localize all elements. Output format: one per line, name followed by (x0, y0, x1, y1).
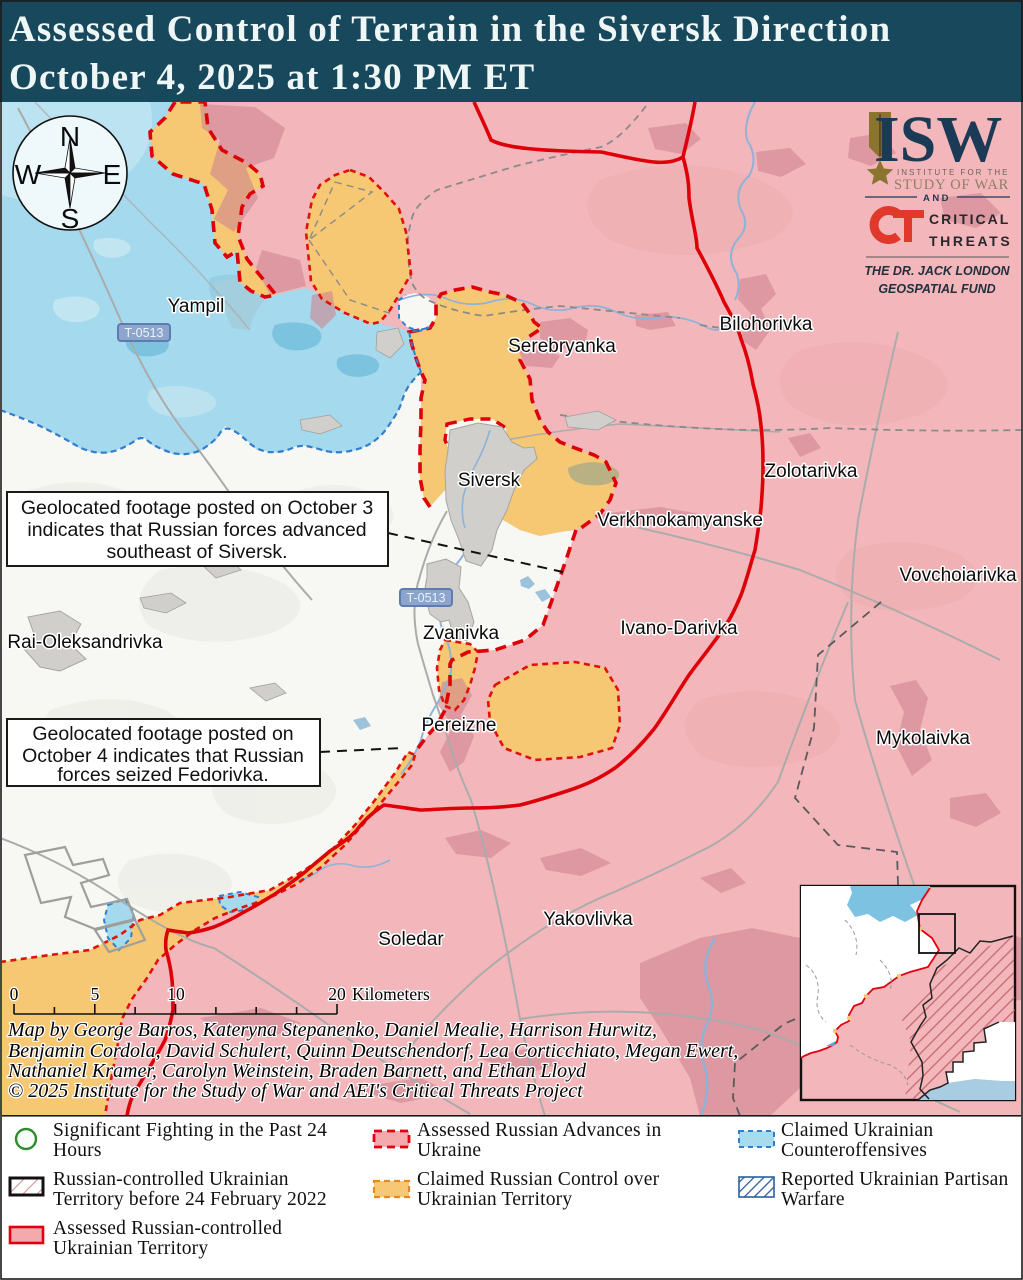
svg-text:AND: AND (923, 193, 951, 204)
svg-text:INSTITUTE FOR THE: INSTITUTE FOR THE (897, 168, 1010, 177)
svg-text:Map by George Barros, Kateryna: Map by George Barros, Kateryna Stepanenk… (7, 1019, 657, 1041)
svg-text:Yampil: Yampil (168, 296, 225, 317)
svg-text:THREATS: THREATS (929, 233, 1012, 249)
svg-text:10: 10 (167, 984, 185, 1004)
svg-text:Geolocated footage posted on O: Geolocated footage posted on October 3 (21, 497, 373, 519)
svg-text:forces seized Fedorivka.: forces seized Fedorivka. (57, 764, 268, 786)
svg-text:© 2025 Institute for the Study: © 2025 Institute for the Study of War an… (8, 1080, 583, 1102)
svg-text:Rai-Oleksandrivka: Rai-Oleksandrivka (7, 632, 163, 653)
svg-text:Vovchoiarivka: Vovchoiarivka (899, 565, 1017, 586)
svg-text:Territory before 24 February 2: Territory before 24 February 2022 (53, 1189, 327, 1210)
svg-text:Mykolaivka: Mykolaivka (876, 728, 970, 749)
svg-text:Soledar: Soledar (378, 929, 444, 950)
svg-text:southeast of Siversk.: southeast of Siversk. (106, 541, 287, 563)
svg-text:THE DR. JACK LONDON: THE DR. JACK LONDON (864, 264, 1010, 278)
svg-text:Nathaniel Kramer, Carolyn Wein: Nathaniel Kramer, Carolyn Weinstein, Bra… (7, 1060, 587, 1082)
svg-text:Zvanivka: Zvanivka (423, 623, 499, 644)
svg-text:T-0513: T-0513 (125, 326, 164, 340)
svg-text:Assessed Russian-controlled: Assessed Russian-controlled (53, 1218, 282, 1239)
svg-text:ISW: ISW (874, 103, 1002, 176)
svg-text:Ukraine: Ukraine (417, 1140, 481, 1161)
svg-text:Bilohorivka: Bilohorivka (720, 314, 813, 335)
svg-text:Assessed Control of Terrain in: Assessed Control of Terrain in the Siver… (9, 9, 891, 50)
svg-text:Russian-controlled Ukrainian: Russian-controlled Ukrainian (53, 1169, 289, 1190)
svg-text:5: 5 (91, 984, 100, 1004)
svg-text:Serebryanka: Serebryanka (508, 336, 616, 357)
svg-text:Pereizne: Pereizne (422, 715, 497, 736)
svg-text:W: W (15, 159, 42, 190)
svg-text:Yakovlivka: Yakovlivka (543, 909, 633, 930)
svg-text:Kilometers: Kilometers (352, 984, 430, 1004)
svg-text:Ukrainian Territory: Ukrainian Territory (417, 1189, 572, 1210)
svg-text:Claimed Ukrainian: Claimed Ukrainian (781, 1120, 933, 1141)
svg-text:Verkhnokamyanske: Verkhnokamyanske (597, 510, 763, 531)
svg-text:Counteroffensives: Counteroffensives (781, 1140, 927, 1161)
svg-text:S: S (61, 203, 80, 234)
svg-text:Zolotarivka: Zolotarivka (765, 461, 858, 482)
svg-text:Significant Fighting in the Pa: Significant Fighting in the Past 24 (53, 1120, 327, 1141)
svg-text:Ukrainian Territory: Ukrainian Territory (53, 1238, 208, 1259)
svg-text:GEOSPATIAL FUND: GEOSPATIAL FUND (878, 282, 995, 296)
svg-text:Warfare: Warfare (781, 1189, 845, 1210)
svg-text:Assessed Russian Advances in: Assessed Russian Advances in (417, 1120, 662, 1141)
svg-text:October 4, 2025 at 1:30 PM ET: October 4, 2025 at 1:30 PM ET (9, 57, 535, 98)
svg-text:Claimed Russian Control over: Claimed Russian Control over (417, 1169, 660, 1190)
svg-text:CRITICAL: CRITICAL (929, 211, 1010, 227)
svg-text:Benjamin Cordola, David Schule: Benjamin Cordola, David Schulert, Quinn … (8, 1040, 738, 1062)
svg-text:N: N (60, 121, 80, 152)
svg-text:0: 0 (10, 984, 19, 1004)
svg-text:Geolocated footage posted on: Geolocated footage posted on (32, 723, 293, 745)
svg-text:Hours: Hours (53, 1140, 102, 1161)
svg-text:T-0513: T-0513 (407, 591, 446, 605)
svg-text:Reported Ukrainian Partisan: Reported Ukrainian Partisan (781, 1169, 1008, 1190)
svg-text:STUDY OF WAR: STUDY OF WAR (894, 177, 1009, 193)
svg-text:Siversk: Siversk (458, 470, 521, 491)
svg-text:E: E (103, 159, 122, 190)
svg-text:20: 20 (328, 984, 346, 1004)
svg-text:indicates that Russian forces: indicates that Russian forces advanced (27, 519, 366, 541)
svg-text:Ivano-Darivka: Ivano-Darivka (620, 618, 738, 639)
